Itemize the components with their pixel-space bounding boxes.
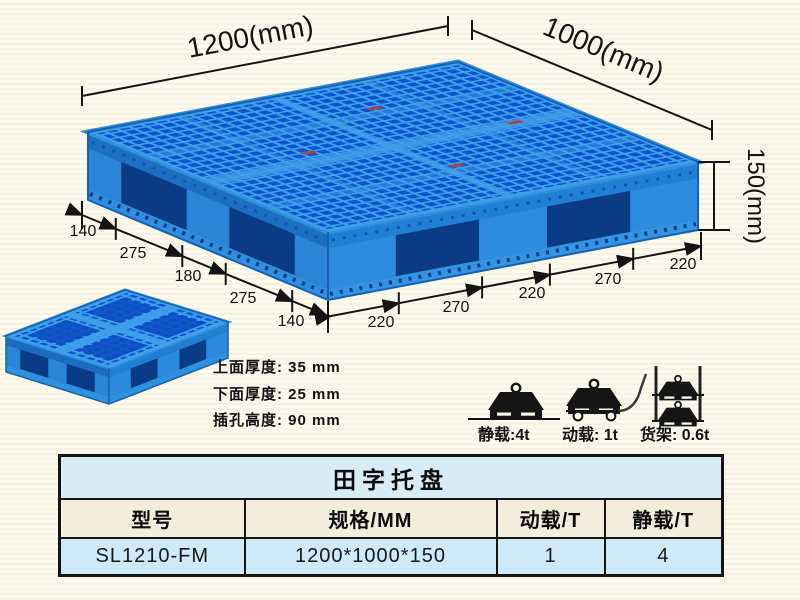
- product-sheet: { "diagram": { "top_width_label": "1200(…: [0, 0, 800, 600]
- table-data-row: SL1210-FM 1200*1000*150 1 4: [60, 538, 723, 576]
- spec-line-fork-height: 插孔高度: 90 mm: [213, 411, 341, 429]
- left-dim-1: 275: [120, 245, 147, 262]
- col-header-spec: 规格/MM: [245, 499, 497, 538]
- right-dim-4: 220: [670, 256, 697, 273]
- dim-1000-label: 1000(mm): [539, 10, 669, 88]
- weight-icon: [658, 402, 698, 427]
- trolley-handle-icon: [618, 374, 646, 411]
- rack-load-label: 货架: 0.6t: [640, 425, 710, 444]
- load-icon-static: 静载:4t: [468, 384, 560, 444]
- right-dim-2: 220: [519, 285, 546, 302]
- load-icon-rack: 货架: 0.6t: [640, 366, 710, 444]
- weight-icon: [488, 384, 544, 418]
- trolley-wheel-icon: [607, 412, 616, 421]
- col-header-dynamic-load: 动载/T: [497, 499, 605, 538]
- cell-static-load: 4: [605, 538, 723, 576]
- spec-line-bottom-thickness: 下面厚度: 25 mm: [213, 385, 341, 403]
- spec-line-top-thickness: 上面厚度: 35 mm: [213, 358, 341, 376]
- cell-model: SL1210-FM: [60, 538, 245, 576]
- table-title-row: 田字托盘: [60, 456, 723, 500]
- static-load-label: 静载:4t: [478, 425, 530, 444]
- dim-150: 150(mm): [698, 148, 769, 244]
- col-header-model: 型号: [60, 499, 245, 538]
- weight-icon: [658, 376, 698, 401]
- right-dim-3: 270: [595, 271, 622, 288]
- right-dim-0: 220: [368, 314, 395, 331]
- spec-table: 田字托盘 型号 规格/MM 动载/T 静载/T SL1210-FM 1200*1…: [58, 454, 724, 577]
- dynamic-load-label: 动载: 1t: [562, 426, 619, 444]
- cell-dynamic-load: 1: [497, 538, 605, 576]
- small-pallet: [6, 290, 228, 404]
- cell-spec: 1200*1000*150: [245, 538, 497, 576]
- weight-icon: [566, 380, 622, 414]
- trolley-wheel-icon: [574, 412, 583, 421]
- spec-text-block: 上面厚度: 35 mm 下面厚度: 25 mm 插孔高度: 90 mm: [213, 358, 341, 429]
- table-title: 田字托盘: [60, 456, 723, 500]
- left-dim-3: 275: [230, 290, 257, 307]
- left-dim-4: 140: [278, 313, 305, 330]
- dim-150-label: 150(mm): [742, 148, 769, 244]
- left-dim-2: 180: [175, 268, 202, 285]
- load-icon-dynamic: 动载: 1t: [562, 374, 646, 444]
- table-header-row: 型号 规格/MM 动载/T 静载/T: [60, 499, 723, 538]
- col-header-static-load: 静载/T: [605, 499, 723, 538]
- right-dim-1: 270: [443, 299, 470, 316]
- left-dim-0: 140: [70, 223, 97, 240]
